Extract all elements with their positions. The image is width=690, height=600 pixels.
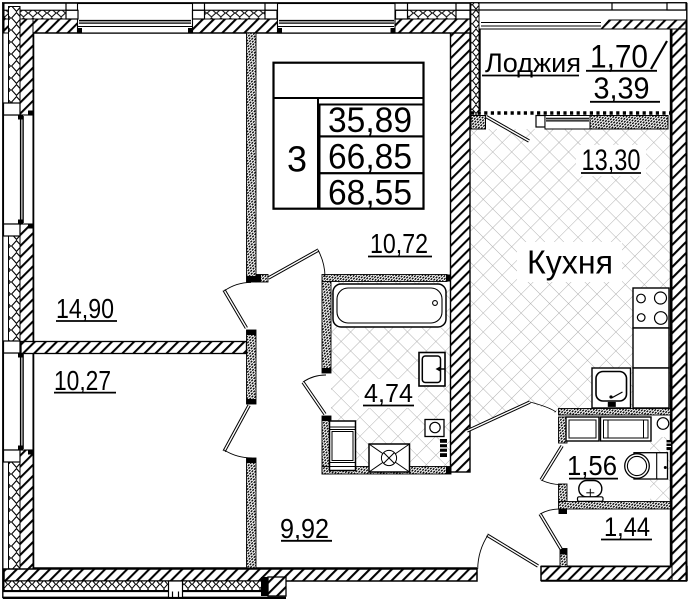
svg-text:1,44: 1,44 — [604, 512, 650, 542]
svg-text:66,85: 66,85 — [328, 138, 412, 177]
svg-text:13,30: 13,30 — [582, 144, 641, 177]
svg-text:9,92: 9,92 — [280, 513, 329, 544]
svg-text:3,39: 3,39 — [594, 71, 650, 106]
svg-text:10,27: 10,27 — [54, 365, 111, 396]
svg-text:1,70: 1,70 — [590, 39, 648, 75]
svg-text:Кухня: Кухня — [527, 244, 613, 281]
svg-text:Лоджия: Лоджия — [485, 48, 581, 78]
svg-text:14,90: 14,90 — [56, 293, 114, 324]
svg-text:35,89: 35,89 — [328, 101, 412, 140]
svg-text:10,72: 10,72 — [370, 228, 428, 259]
svg-text:4,74: 4,74 — [364, 378, 413, 408]
svg-text:68,55: 68,55 — [328, 174, 412, 213]
svg-text:1,56: 1,56 — [567, 450, 617, 481]
svg-text:3: 3 — [287, 139, 307, 180]
